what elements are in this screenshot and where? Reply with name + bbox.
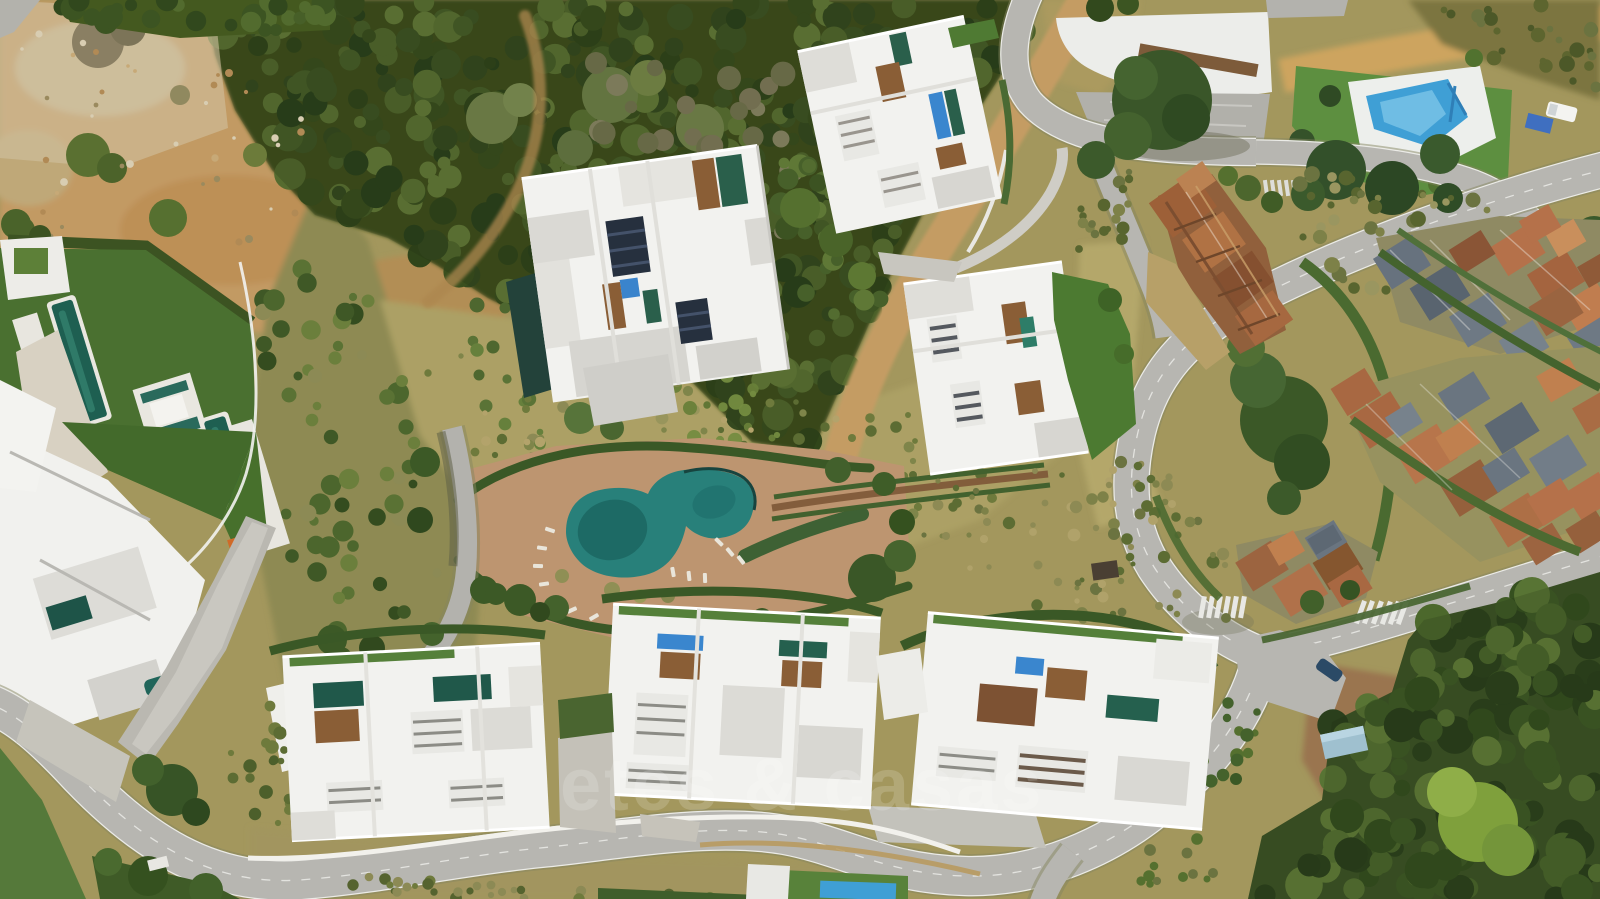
svg-text:etes & casas: etes & casas [560, 743, 1044, 826]
